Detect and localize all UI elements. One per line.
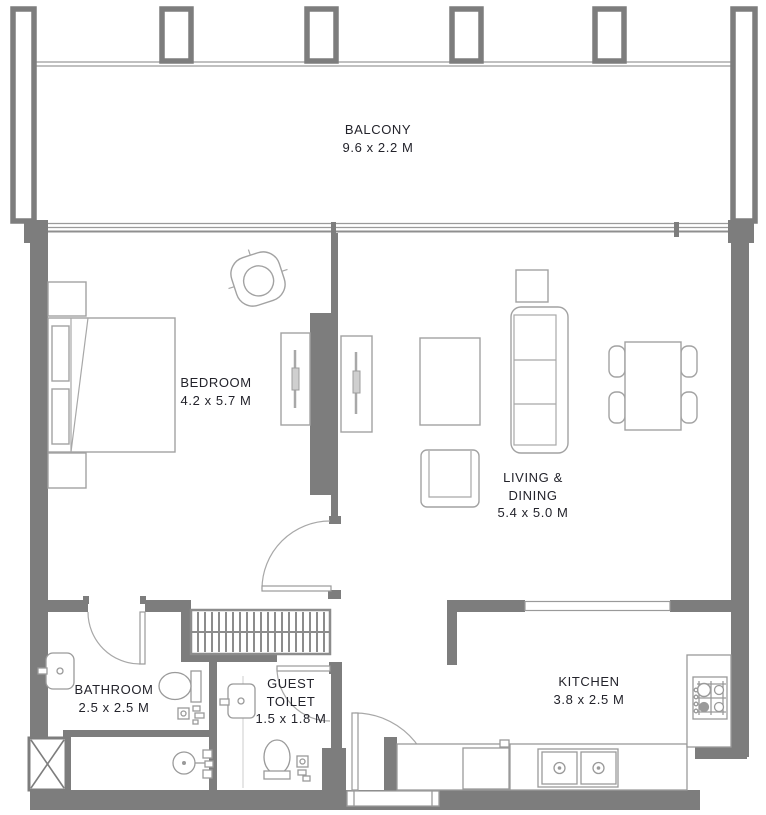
room-label-guest-toilet: GUEST TOILET 1.5 x 1.8 M: [201, 675, 381, 728]
floor-drain-icon: [297, 756, 310, 781]
room-dims: 3.8 x 2.5 M: [499, 691, 679, 709]
shower-icon: [173, 750, 213, 778]
kitchen-sink-icon: [538, 749, 618, 787]
room-name: DINING: [443, 487, 623, 505]
room-label-bathroom: BATHROOM 2.5 x 2.5 M: [24, 681, 204, 716]
room-name: BALCONY: [288, 121, 468, 139]
side-table-icon: [516, 270, 548, 302]
service-shaft: [29, 738, 66, 790]
balcony-window-wall: [48, 222, 728, 237]
entry-jamb-wall: [384, 737, 397, 790]
room-dims: 5.4 x 5.0 M: [443, 504, 623, 522]
bedroom-chair-icon: [219, 240, 295, 312]
room-dims: 4.2 x 5.7 M: [126, 392, 306, 410]
tv-unit-icon: [341, 336, 372, 432]
room-name: TOILET: [201, 693, 381, 711]
top-columns: [162, 9, 624, 61]
closet-icon: [191, 610, 330, 654]
room-dims: 1.5 x 1.8 M: [201, 710, 381, 728]
balcony-edge-line: [33, 62, 733, 66]
bedroom-living-partition-wall: [310, 233, 341, 599]
sofa-icon: [511, 307, 568, 453]
room-dims: 2.5 x 2.5 M: [24, 699, 204, 717]
bedroom-door: [262, 521, 331, 591]
kitchen-window: [525, 602, 670, 611]
entry-threshold: [347, 791, 439, 806]
nightstand-icon: [48, 453, 86, 488]
room-name: LIVING &: [443, 469, 623, 487]
room-dims: 9.6 x 2.2 M: [288, 139, 468, 157]
coffee-table-icon: [420, 338, 480, 425]
room-label-kitchen: KITCHEN 3.8 x 2.5 M: [499, 673, 679, 708]
room-name: BATHROOM: [24, 681, 204, 699]
room-label-balcony: BALCONY 9.6 x 2.2 M: [288, 121, 468, 156]
room-label-living-dining: LIVING & DINING 5.4 x 5.0 M: [443, 469, 623, 522]
dining-set-icon: [609, 342, 697, 430]
room-name: KITCHEN: [499, 673, 679, 691]
stove-icon: [693, 677, 727, 719]
room-name: BEDROOM: [126, 374, 306, 392]
room-name: GUEST: [201, 675, 381, 693]
room-label-bedroom: BEDROOM 4.2 x 5.7 M: [126, 374, 306, 409]
floor-plan: BALCONY 9.6 x 2.2 M BEDROOM 4.2 x 5.7 M …: [0, 0, 766, 815]
corner-column-left: [13, 9, 34, 221]
nightstand-icon: [48, 282, 86, 316]
outer-walls: [30, 222, 749, 810]
bathroom-door: [88, 612, 145, 664]
guest-toilet-icon: [264, 740, 290, 779]
corner-column-right: [733, 9, 755, 221]
